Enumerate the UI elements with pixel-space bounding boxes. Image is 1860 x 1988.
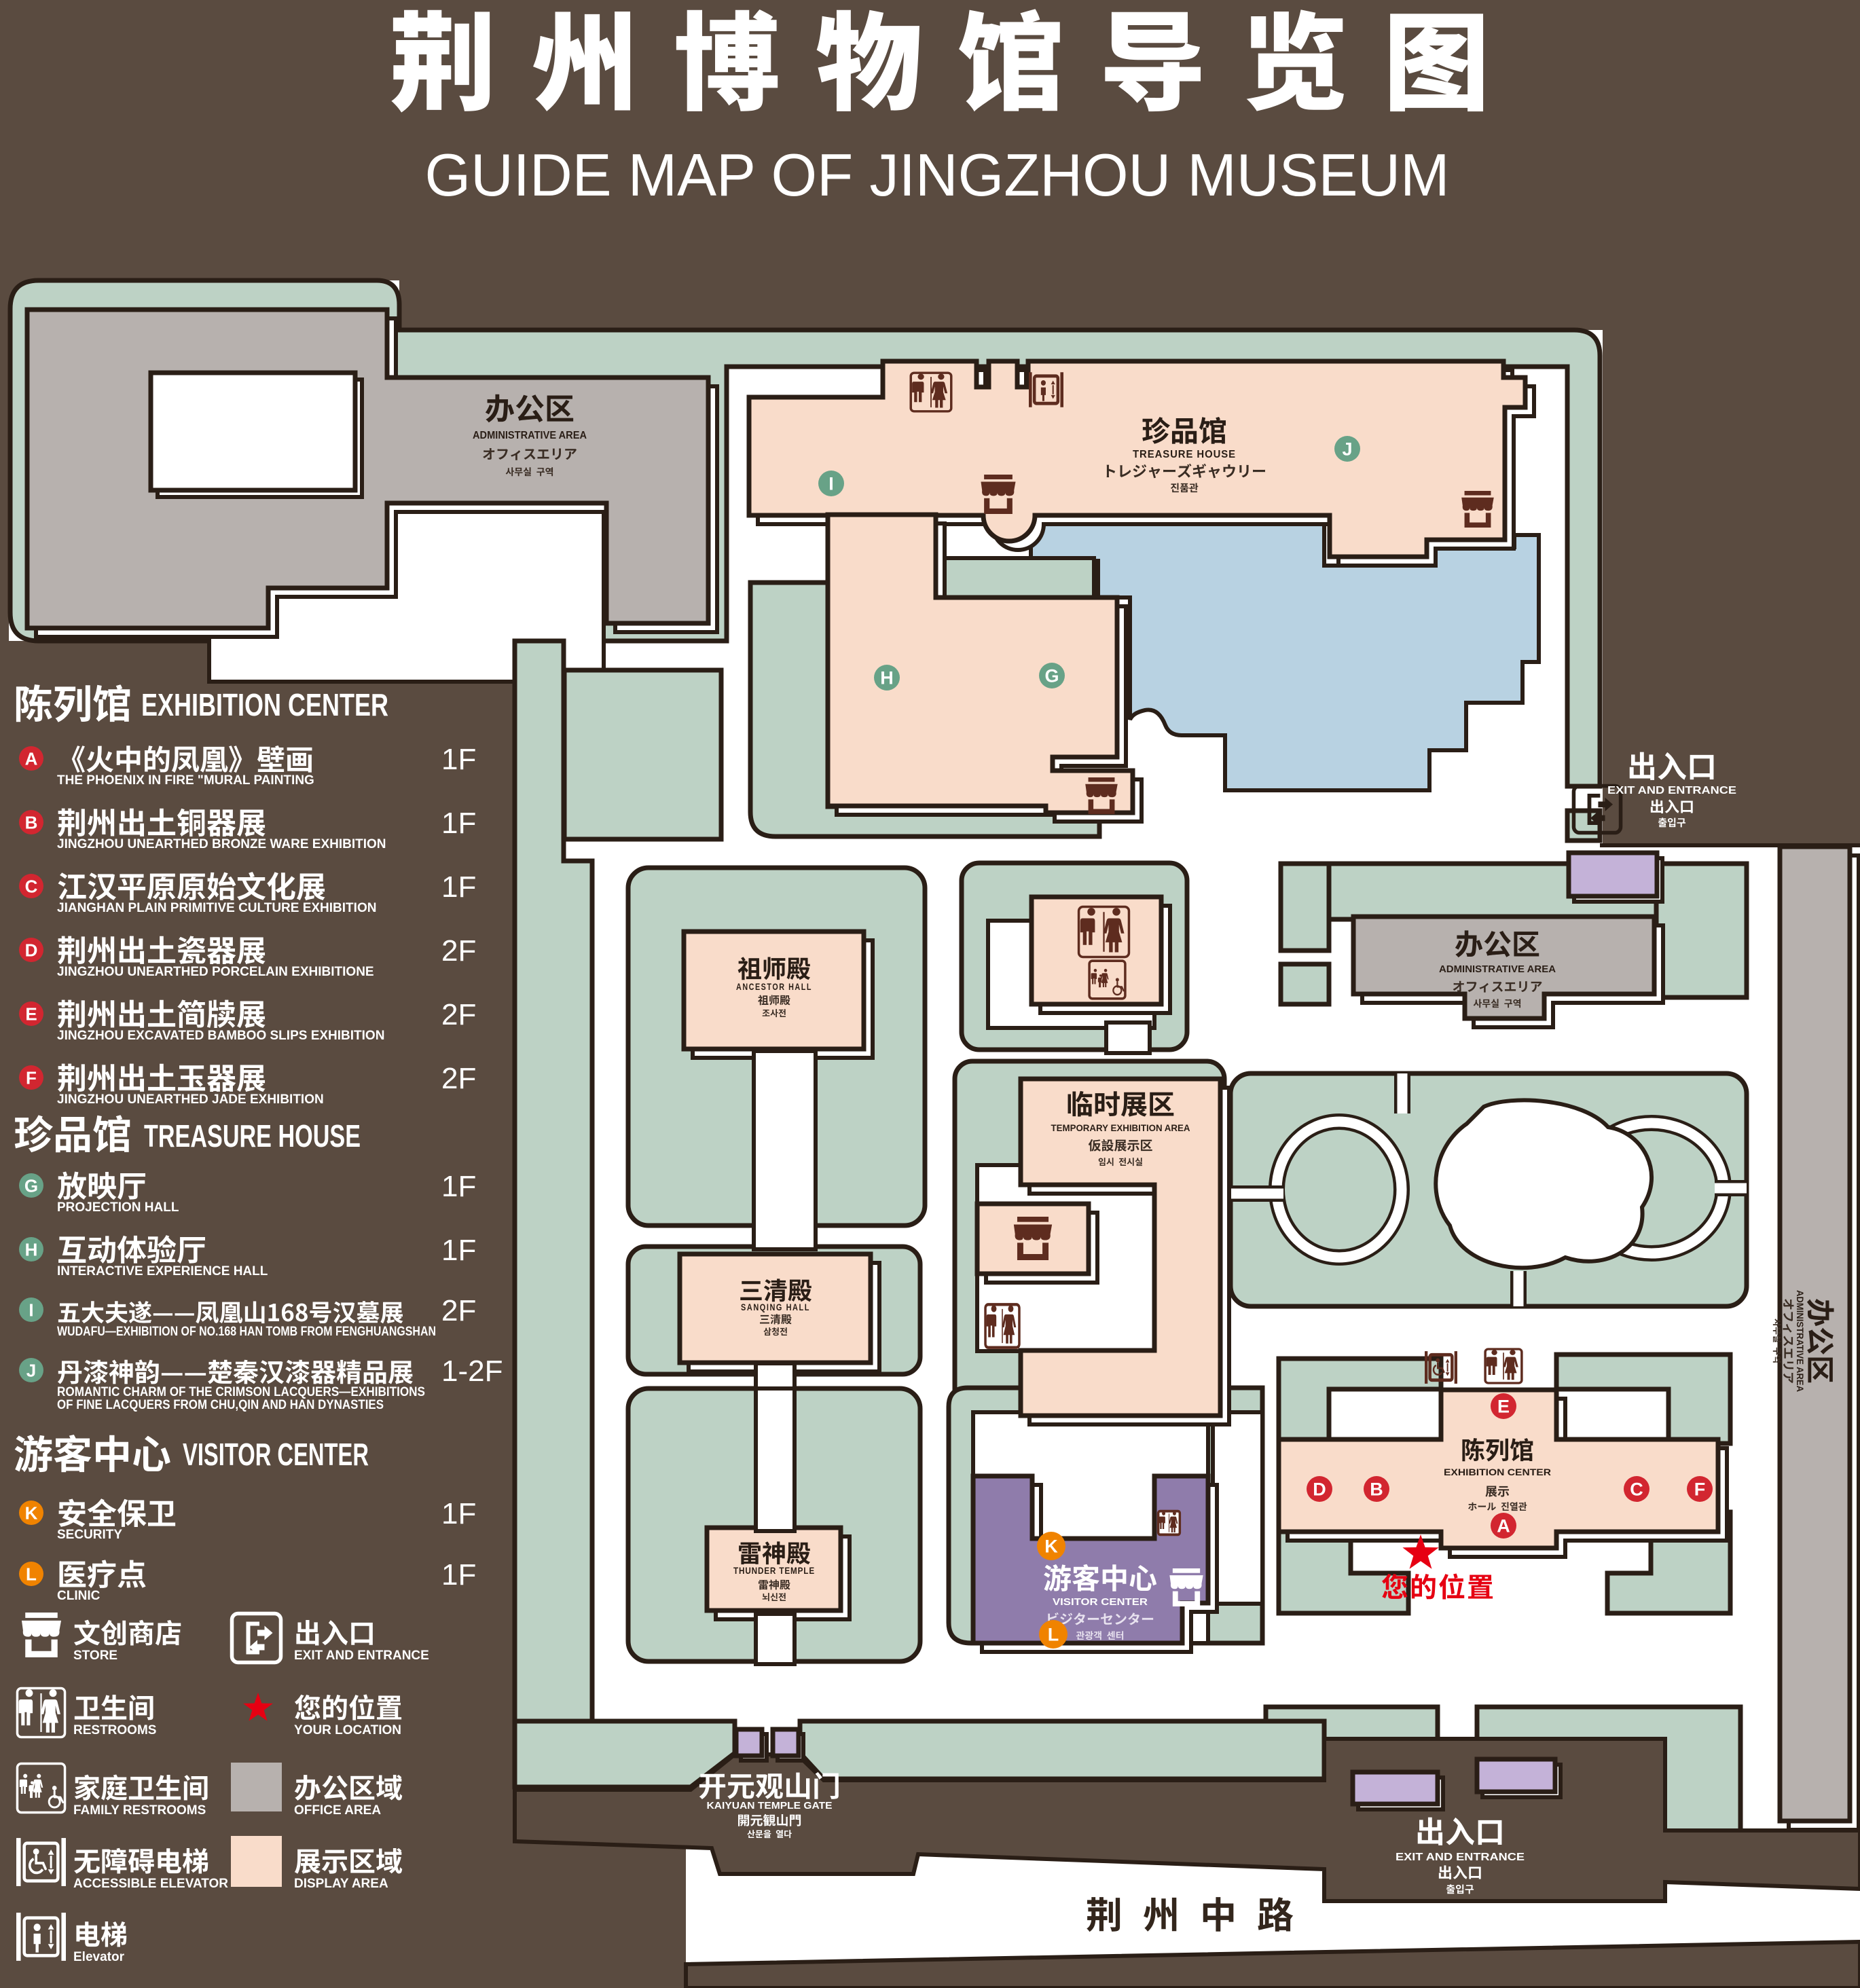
svg-text:ADMINISTRATIVE AREA: ADMINISTRATIVE AREA xyxy=(1439,963,1556,975)
svg-text:H: H xyxy=(25,1239,38,1259)
svg-text:G: G xyxy=(1044,666,1059,686)
svg-text:1F: 1F xyxy=(441,807,476,840)
svg-text:K: K xyxy=(1044,1536,1058,1557)
svg-text:SECURITY: SECURITY xyxy=(57,1528,122,1542)
svg-text:DISPLAY AREA: DISPLAY AREA xyxy=(294,1877,388,1891)
svg-text:1F: 1F xyxy=(441,1558,476,1591)
svg-text:I: I xyxy=(29,1300,33,1320)
svg-text:JIANGHAN PLAIN PRIMITIVE CULTU: JIANGHAN PLAIN PRIMITIVE CULTURE EXHIBIT… xyxy=(57,901,376,915)
svg-text:F: F xyxy=(26,1067,37,1088)
svg-text:B: B xyxy=(1370,1479,1383,1500)
svg-text:KAIYUAN TEMPLE GATE: KAIYUAN TEMPLE GATE xyxy=(707,1800,833,1811)
svg-text:EXHIBITION CENTER: EXHIBITION CENTER xyxy=(141,687,388,722)
svg-text:1F: 1F xyxy=(441,743,476,776)
svg-text:A: A xyxy=(25,748,38,769)
svg-text:GUIDE MAP OF JINGZHOU MUSEUM: GUIDE MAP OF JINGZHOU MUSEUM xyxy=(425,141,1450,208)
svg-text:2F: 2F xyxy=(441,998,476,1031)
svg-text:D: D xyxy=(1313,1479,1326,1500)
svg-text:JINGZHOU UNEARTHED PORCELAIN E: JINGZHOU UNEARTHED PORCELAIN EXHIBITIONE xyxy=(57,965,374,979)
svg-text:JINGZHOU UNEARTHED JADE EXHIBI: JINGZHOU UNEARTHED JADE EXHIBITION xyxy=(57,1092,324,1107)
svg-text:1-2F: 1-2F xyxy=(441,1355,503,1388)
svg-text:ADMINISTRATIVE AREA: ADMINISTRATIVE AREA xyxy=(473,430,587,441)
svg-text:J: J xyxy=(26,1360,36,1380)
svg-text:I: I xyxy=(828,474,834,494)
svg-text:ROMANTIC CHARM OF THE CRIMSON: ROMANTIC CHARM OF THE CRIMSON LACQUERS—E… xyxy=(57,1385,425,1399)
svg-text:CLINIC: CLINIC xyxy=(57,1589,101,1603)
svg-text:EXHIBITION CENTER: EXHIBITION CENTER xyxy=(1444,1467,1551,1477)
svg-text:1F: 1F xyxy=(441,1497,476,1530)
svg-text:H: H xyxy=(880,668,894,688)
svg-text:F: F xyxy=(1694,1479,1706,1500)
svg-text:OF FINE LACQUERS FROM CHU,QIN: OF FINE LACQUERS FROM CHU,QIN AND HAN DY… xyxy=(57,1398,384,1412)
svg-text:E: E xyxy=(1497,1397,1510,1417)
svg-text:A: A xyxy=(1497,1516,1510,1536)
svg-text:EXIT AND ENTRANCE: EXIT AND ENTRANCE xyxy=(1396,1852,1525,1863)
svg-text:ACCESSIBLE ELEVATOR: ACCESSIBLE ELEVATOR xyxy=(73,1877,228,1891)
svg-text:SANQING HALL: SANQING HALL xyxy=(741,1302,810,1312)
svg-text:EXIT AND ENTRANCE: EXIT AND ENTRANCE xyxy=(294,1649,429,1663)
svg-text:TEMPORARY EXHIBITION AREA: TEMPORARY EXHIBITION AREA xyxy=(1051,1122,1190,1133)
svg-text:2F: 2F xyxy=(441,934,476,968)
svg-text:THE PHOENIX IN FIRE "MURAL PAI: THE PHOENIX IN FIRE "MURAL PAINTING xyxy=(57,773,314,788)
svg-text:INTERACTIVE EXPERIENCE HALL: INTERACTIVE EXPERIENCE HALL xyxy=(57,1264,268,1278)
svg-text:JINGZHOU UNEARTHED BRONZE WARE: JINGZHOU UNEARTHED BRONZE WARE EXHIBITIO… xyxy=(57,837,386,851)
svg-text:1F: 1F xyxy=(441,1170,476,1203)
svg-text:YOUR LOCATION: YOUR LOCATION xyxy=(294,1723,401,1737)
svg-text:Elevator: Elevator xyxy=(73,1950,125,1964)
svg-text:WUDAFU—EXHIBITION OF NO.168 HA: WUDAFU—EXHIBITION OF NO.168 HAN TOMB FRO… xyxy=(57,1325,436,1339)
svg-text:TREASURE HOUSE: TREASURE HOUSE xyxy=(1133,449,1236,460)
svg-text:E: E xyxy=(25,1004,37,1024)
svg-text:L: L xyxy=(1048,1625,1059,1645)
svg-text:C: C xyxy=(25,876,38,896)
svg-text:EXIT AND ENTRANCE: EXIT AND ENTRANCE xyxy=(1607,785,1736,796)
svg-text:PROJECTION HALL: PROJECTION HALL xyxy=(57,1200,179,1215)
svg-text:K: K xyxy=(25,1503,38,1523)
svg-text:TREASURE HOUSE: TREASURE HOUSE xyxy=(144,1118,361,1154)
svg-text:2F: 2F xyxy=(441,1294,476,1327)
svg-text:JINGZHOU EXCAVATED BAMBOO SLIP: JINGZHOU EXCAVATED BAMBOO SLIPS EXHIBITI… xyxy=(57,1029,384,1043)
svg-text:VISITOR CENTER: VISITOR CENTER xyxy=(1053,1596,1148,1608)
svg-text:OFFICE AREA: OFFICE AREA xyxy=(294,1803,381,1818)
svg-text:1F: 1F xyxy=(441,870,476,904)
svg-text:B: B xyxy=(25,812,38,832)
svg-text:RESTROOMS: RESTROOMS xyxy=(73,1723,156,1737)
svg-text:VISITOR CENTER: VISITOR CENTER xyxy=(183,1437,369,1472)
svg-text:D: D xyxy=(25,940,38,960)
svg-text:1F: 1F xyxy=(441,1234,476,1267)
svg-text:G: G xyxy=(24,1175,38,1196)
svg-text:J: J xyxy=(1342,439,1352,460)
svg-text:THUNDER TEMPLE: THUNDER TEMPLE xyxy=(733,1565,815,1576)
svg-text:L: L xyxy=(26,1564,37,1584)
svg-text:STORE: STORE xyxy=(73,1649,117,1663)
svg-text:ANCESTOR HALL: ANCESTOR HALL xyxy=(736,981,812,992)
svg-text:FAMILY RESTROOMS: FAMILY RESTROOMS xyxy=(73,1803,206,1818)
svg-text:C: C xyxy=(1630,1479,1643,1500)
svg-text:2F: 2F xyxy=(441,1062,476,1095)
svg-text:ADMINISTRATIVE AREA: ADMINISTRATIVE AREA xyxy=(1795,1290,1806,1392)
